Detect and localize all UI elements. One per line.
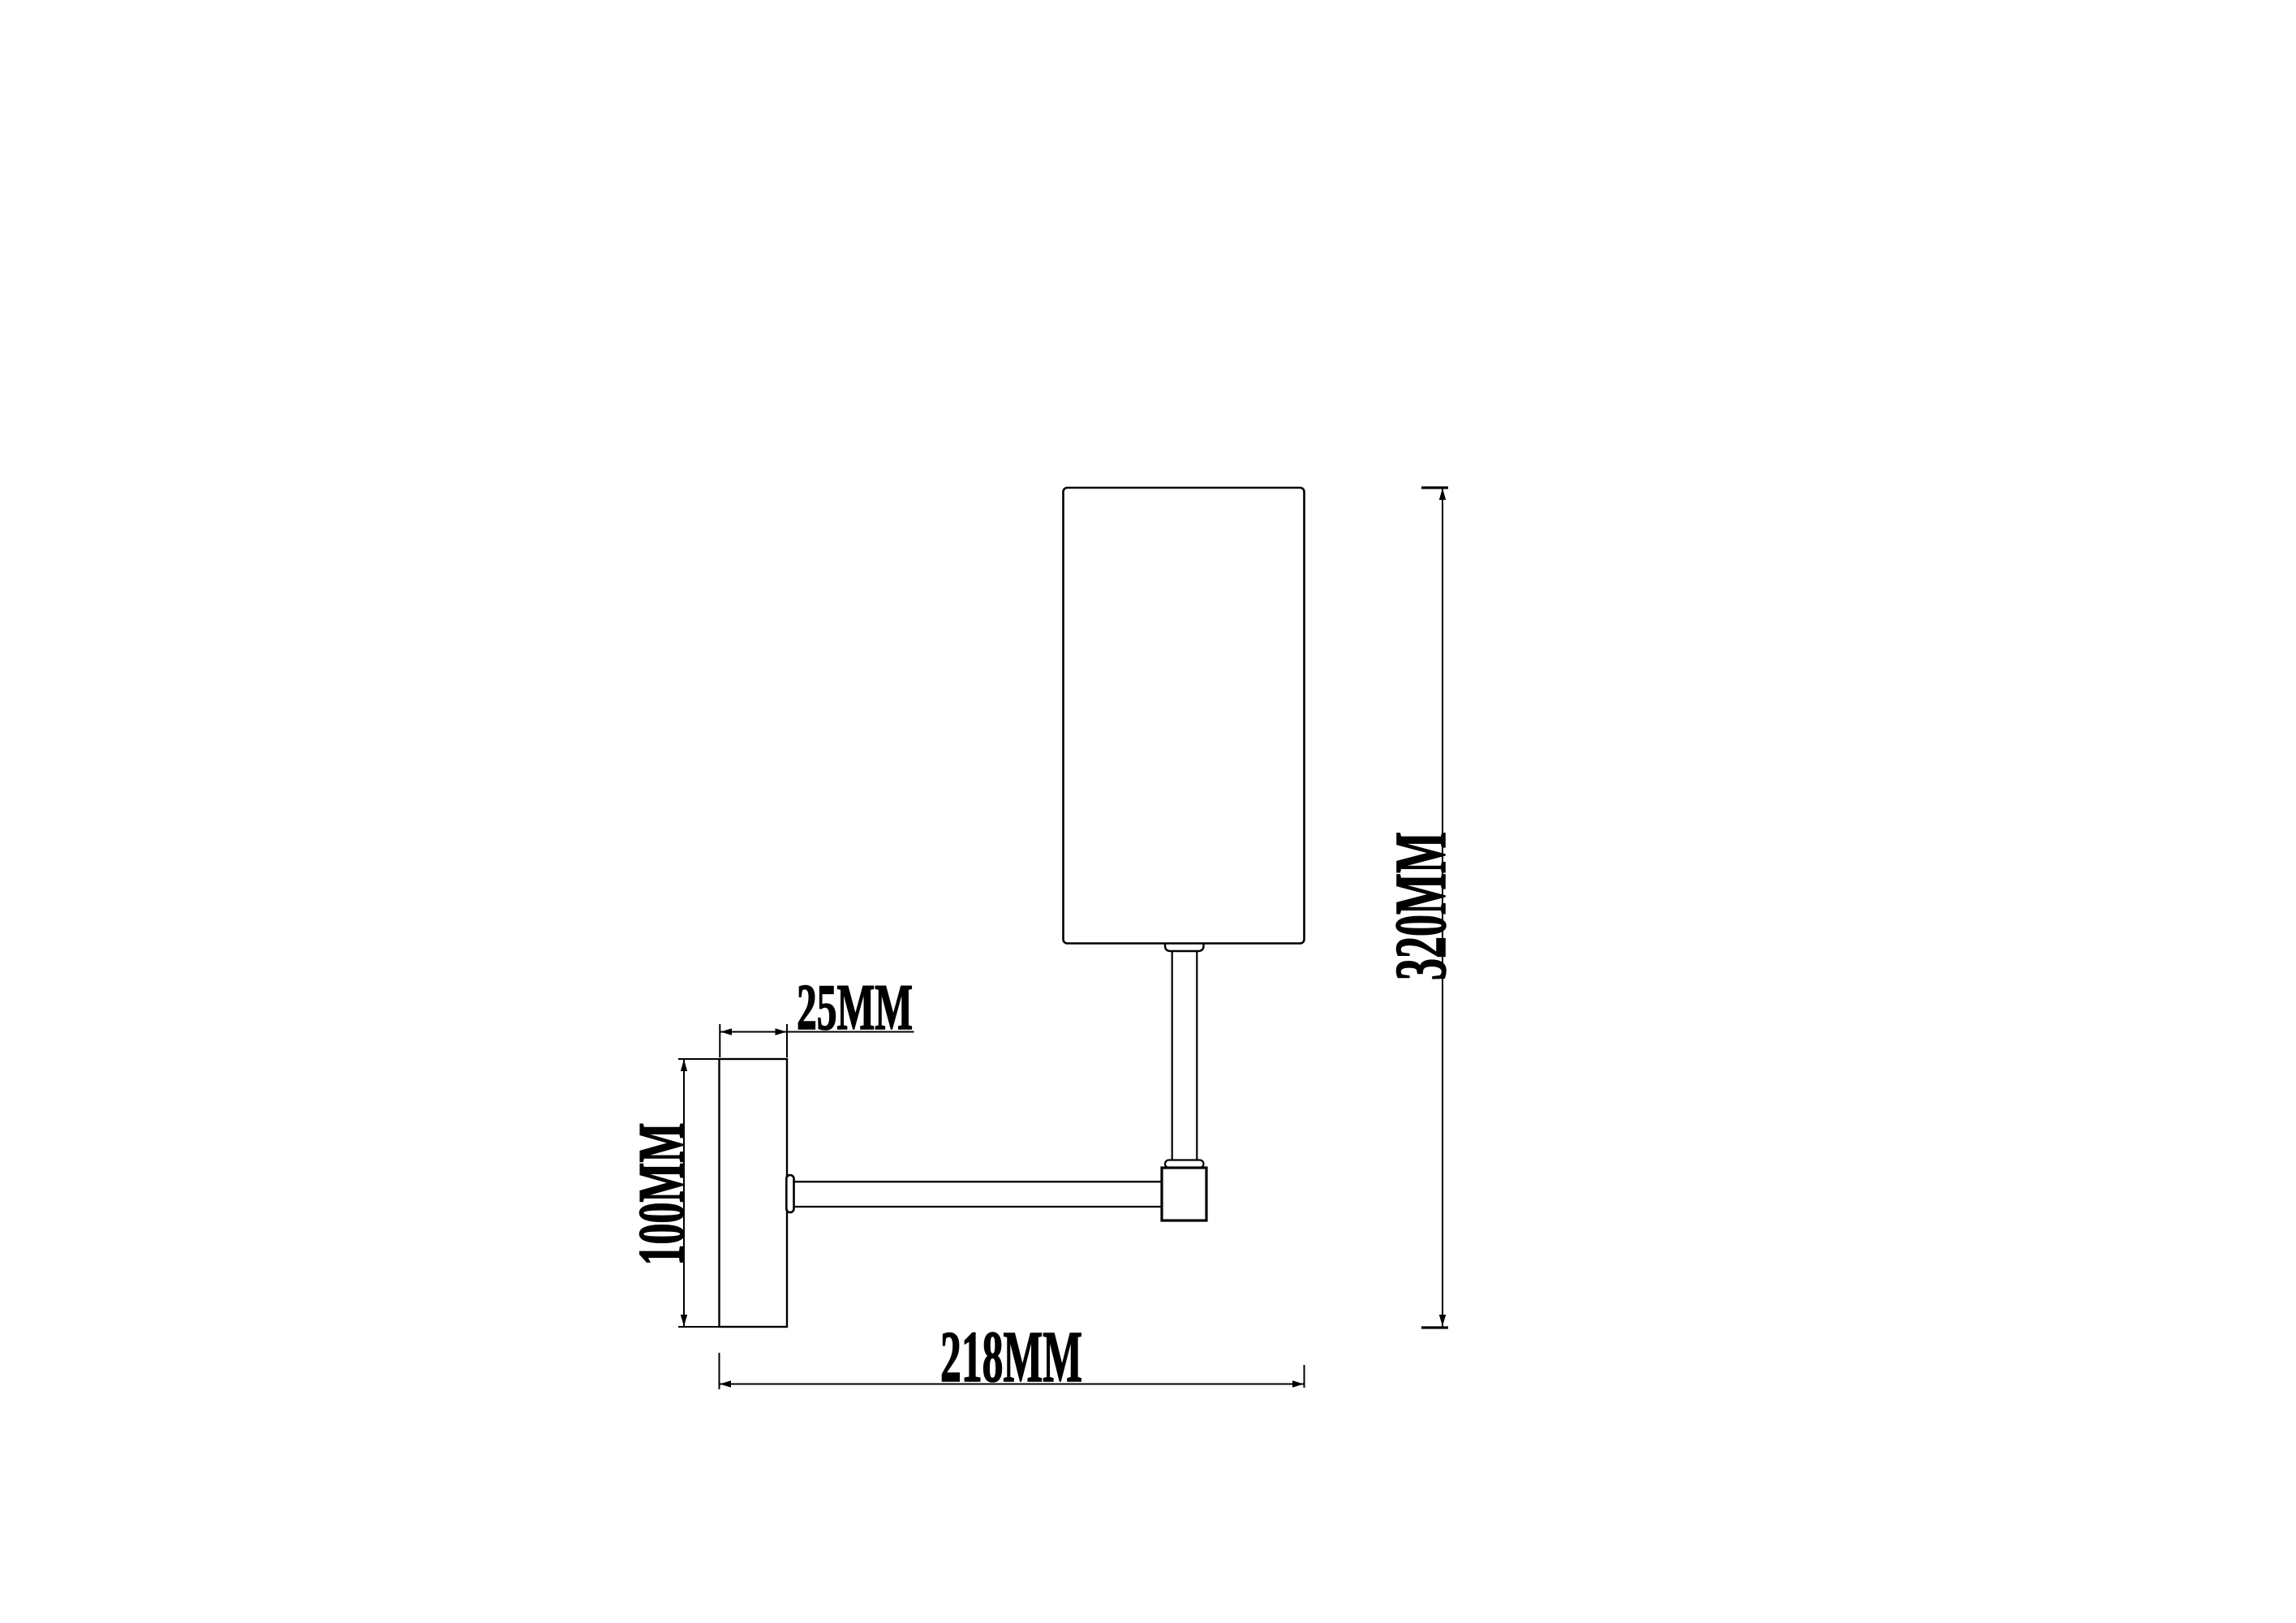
svg-text:218MM: 218MM [940,1317,1082,1397]
svg-text:320MM: 320MM [1381,832,1461,980]
svg-text:25MM: 25MM [797,972,913,1044]
svg-text:100MM: 100MM [626,1123,698,1266]
